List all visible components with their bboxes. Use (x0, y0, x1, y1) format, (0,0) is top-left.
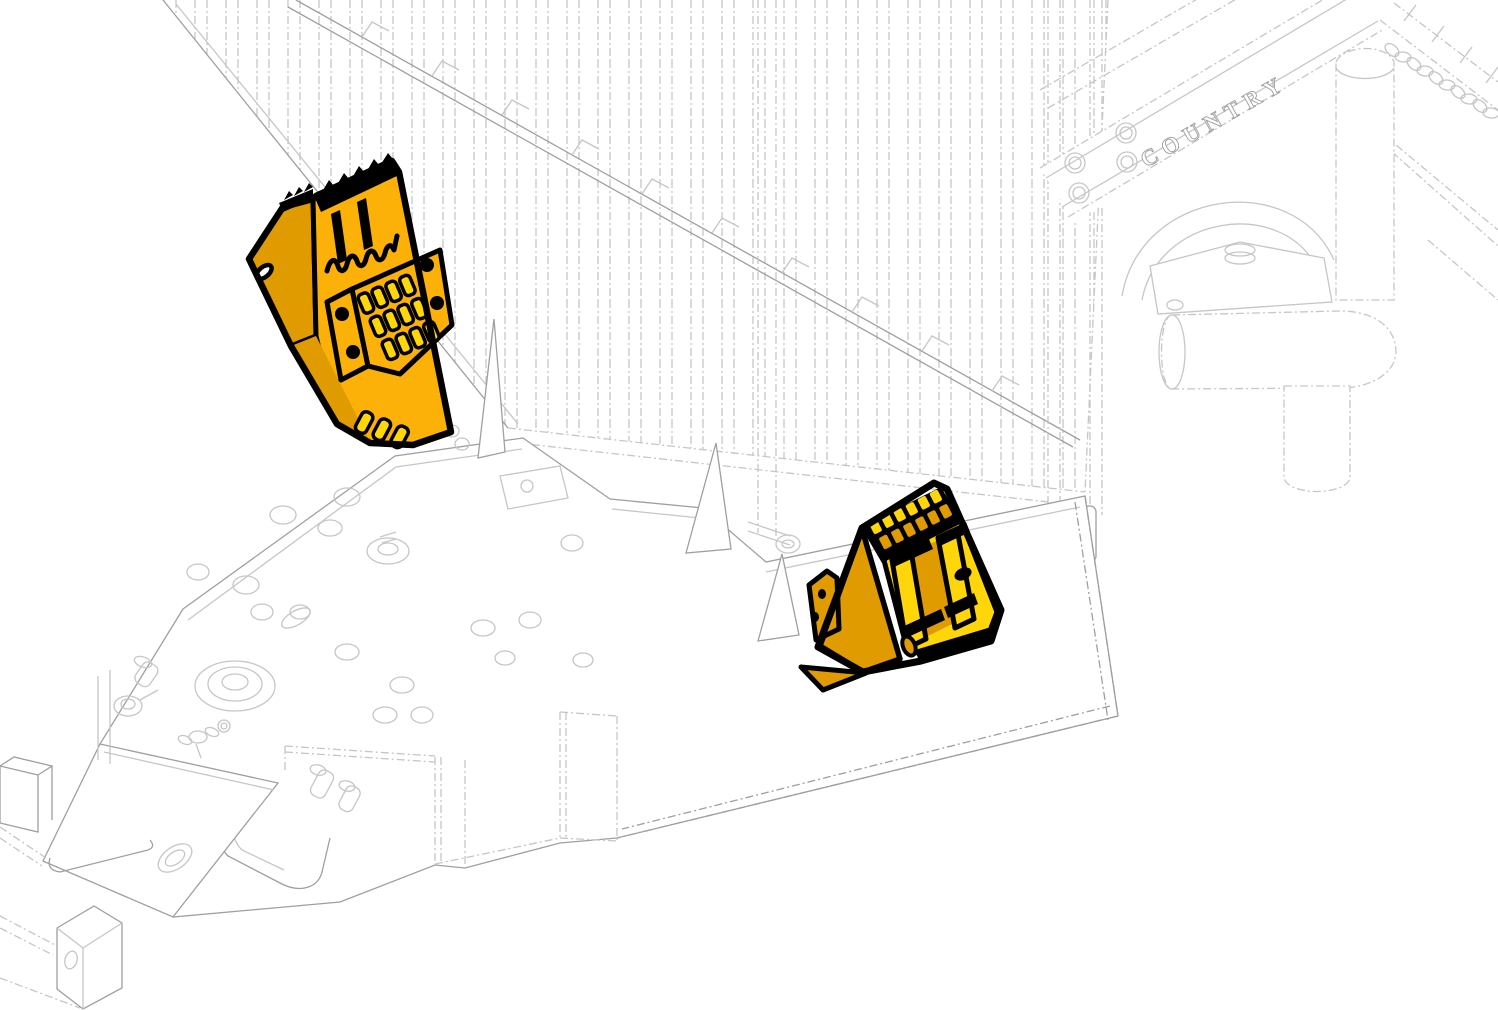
vertical-tube (1336, 49, 1394, 301)
safety-chain (1383, 41, 1498, 119)
ladder-rails (1380, 3, 1498, 300)
corner-bracket (57, 906, 122, 1009)
drop-tube (1284, 386, 1350, 492)
deck-plate (100, 438, 1118, 917)
header-structures: COUNTRY (1040, 0, 1498, 492)
trailer-technical-drawing: COUNTRY (0, 0, 1498, 1010)
dome-cover (1122, 202, 1334, 314)
horizontal-tube (1162, 311, 1397, 389)
side-box-part (0, 757, 52, 832)
